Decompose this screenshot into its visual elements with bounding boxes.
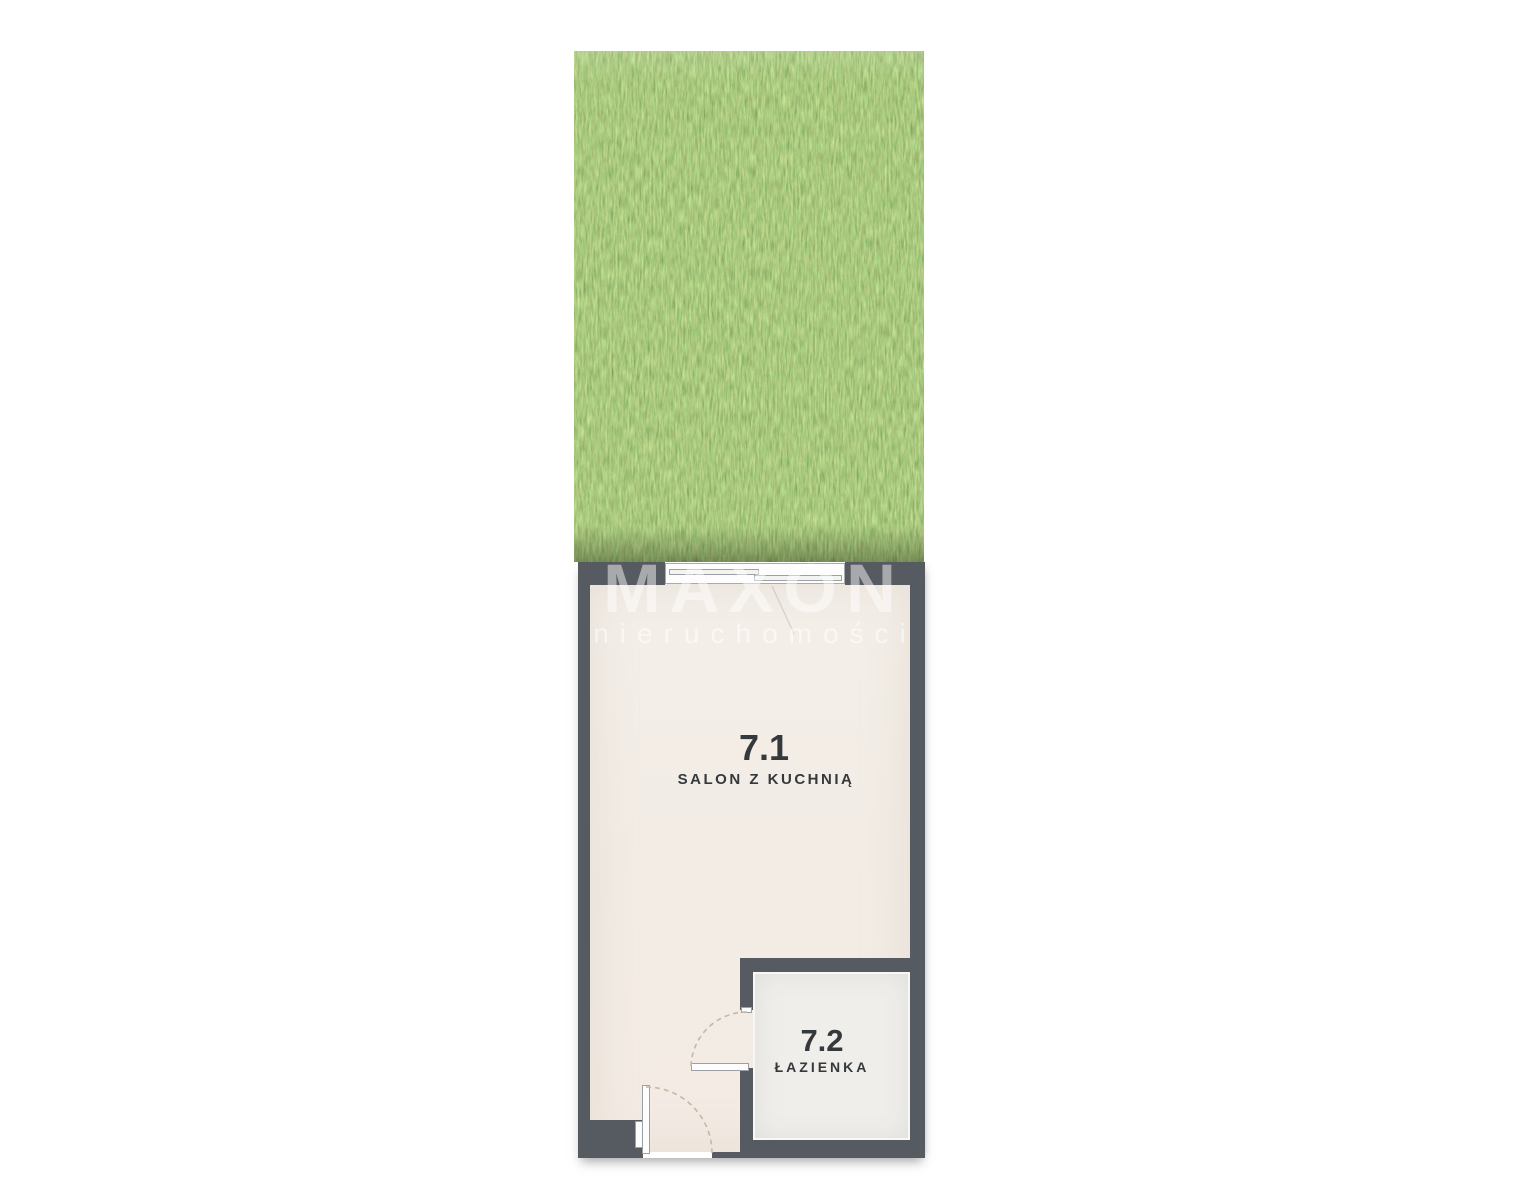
wall-bottom-middle [712,1152,742,1158]
wall-bathroom-left-lower [740,1068,753,1158]
wall-bathroom-top [740,958,910,972]
balcony-window [665,563,845,584]
salon-room-name: SALON Z KUCHNIĄ [656,771,876,788]
wall-bathroom-left-upper [740,958,753,1010]
wall-bathroom-bottom [740,1140,925,1158]
floorplan-canvas: 7.1 SALON Z KUCHNIĄ 7.2 ŁAZIENKA MAXON n… [0,0,1521,1200]
wall-top-left [578,562,665,585]
grass-edge-shading [574,51,924,562]
wall-left [578,562,590,1120]
bathroom-door-jamb [741,1007,752,1013]
entrance-door-leaf [642,1085,650,1154]
salon-room-number: 7.1 [664,727,864,769]
window-pane-right [754,575,842,581]
bathroom-room-name: ŁAZIENKA [712,1059,932,1075]
window-pane-left [669,569,759,575]
wall-bottom-left-block [578,1120,643,1158]
bathroom-room-number: 7.2 [722,1023,922,1059]
